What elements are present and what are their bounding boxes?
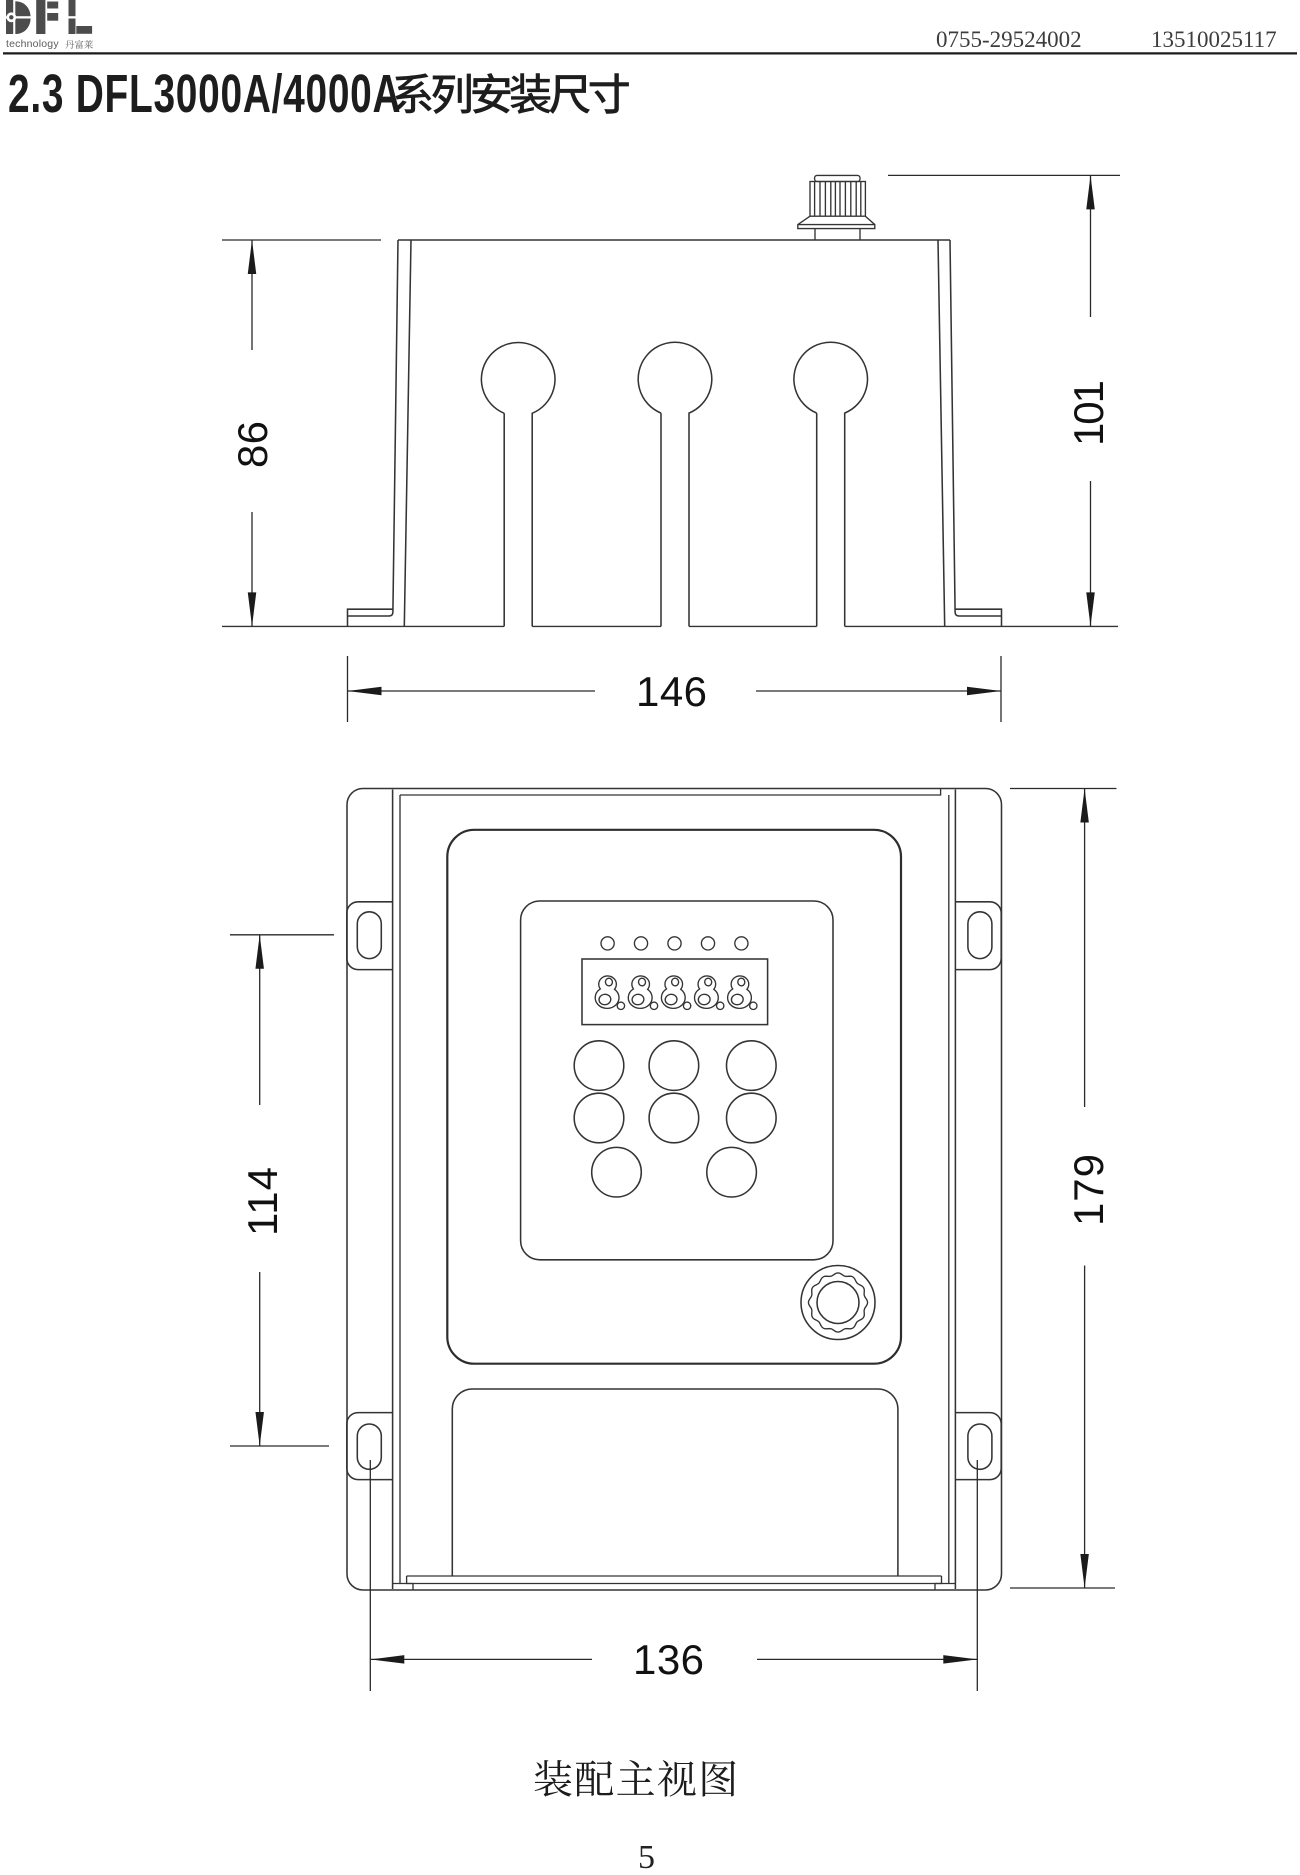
svg-text:101: 101 xyxy=(1065,380,1112,446)
svg-text:13510025117: 13510025117 xyxy=(1151,27,1277,52)
svg-text:0755-29524002: 0755-29524002 xyxy=(936,27,1082,52)
svg-text:146: 146 xyxy=(636,668,707,715)
svg-text:86: 86 xyxy=(229,421,276,468)
svg-text:136: 136 xyxy=(633,1636,704,1683)
svg-text:2.3 DFL3000A/4000A: 2.3 DFL3000A/4000A xyxy=(8,63,401,124)
svg-text:technology: technology xyxy=(6,38,59,50)
svg-text:5: 5 xyxy=(638,1839,655,1875)
svg-text:179: 179 xyxy=(1065,1154,1112,1226)
svg-text:114: 114 xyxy=(239,1167,286,1236)
